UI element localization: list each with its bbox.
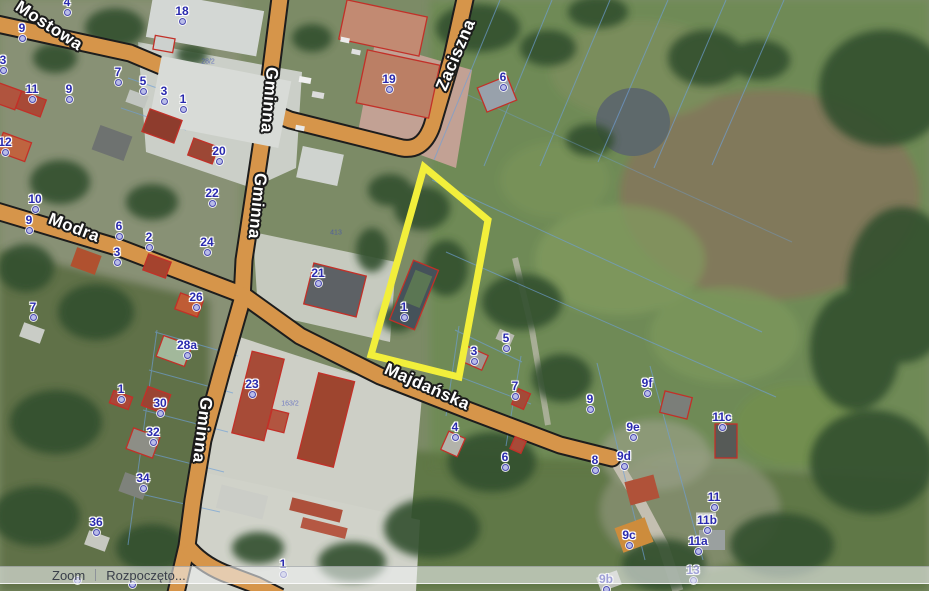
map-viewer: 28/2413163/2 MostowaGminnaGminnaGminnaMo… xyxy=(0,0,929,591)
map-canvas[interactable] xyxy=(0,0,929,591)
status-zoom-mode[interactable]: Zoom xyxy=(52,568,85,583)
terrain-layer xyxy=(0,0,929,591)
status-message: Rozpoczęto... xyxy=(106,568,186,583)
status-divider xyxy=(95,569,96,581)
status-bar: Zoom Rozpoczęto... xyxy=(0,566,929,584)
